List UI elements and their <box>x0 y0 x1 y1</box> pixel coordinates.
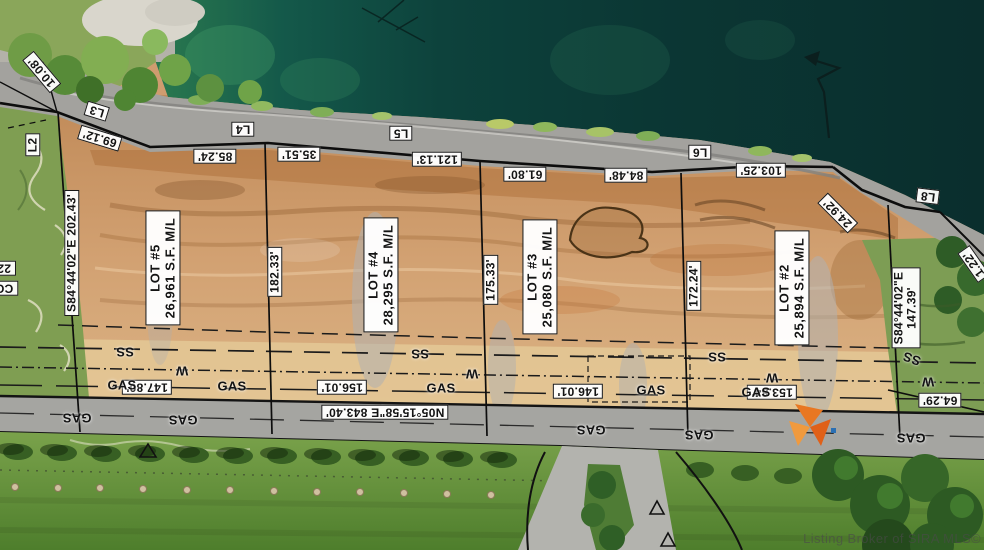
bearing-west: S84°44'02"E 202.43' <box>64 190 79 316</box>
water-line-text: W <box>766 370 779 385</box>
dim-175-33: 175.33' <box>483 255 498 305</box>
ss-line-text: SS <box>411 346 429 361</box>
dim-146-01: 146.01' <box>553 383 603 398</box>
dim-35-51: 35.51' <box>278 146 321 161</box>
gas-line-text: GAS <box>426 382 455 397</box>
dim-182-33: 182.33' <box>267 247 282 297</box>
lot-5-label: LOT #5 26,961 S.F. M/L <box>145 211 180 326</box>
mls-watermark: Listing Broker of SIRA MLS© <box>803 531 981 546</box>
lot-3-label: LOT #3 25,080 S.F. M/L <box>522 220 557 335</box>
curve-label-l4: L4 <box>232 121 255 136</box>
water-line-text: W <box>922 374 935 389</box>
edge-label-22: 22 <box>0 260 16 275</box>
contour-depression-outline <box>570 208 648 258</box>
dim-61-80: 61.80' <box>504 166 547 181</box>
lot-4-label: LOT #4 28,295 S.F. M/L <box>363 218 398 333</box>
curve-label-l8: L8 <box>916 187 940 205</box>
gas-road-text: GAS <box>576 422 605 437</box>
gas-line-text: GAS <box>636 384 665 399</box>
lot-2-label: LOT #2 25,894 S.F. M/L <box>774 231 809 346</box>
dim-64-29: 64.29' <box>919 392 962 407</box>
gas-road-text: GAS <box>684 427 713 442</box>
edge-label-co: CO <box>0 280 18 295</box>
gas-road-text: GAS <box>168 412 197 427</box>
water-line-text: W <box>176 363 189 378</box>
dim-121-13: 121.13' <box>412 151 462 166</box>
curve-label-l5: L5 <box>390 125 413 140</box>
dim-103-25: 103.25' <box>736 162 786 177</box>
ss-line-text: SS <box>116 344 134 359</box>
gas-road-text: GAS <box>62 410 91 425</box>
dim-172-24: 172.24' <box>686 261 701 311</box>
dim-84-48: 84.48' <box>605 167 648 182</box>
curve-label-l6: L6 <box>689 144 712 159</box>
curve-label-l2: L2 <box>25 134 40 157</box>
water-line-text: W <box>466 366 479 381</box>
gas-road-text: GAS <box>896 430 925 445</box>
plat-map-aerial: L210.08'L369.12'L485.24'35.51'L5121.13'6… <box>0 0 984 550</box>
gas-line-text: GAS <box>217 380 246 395</box>
dim-156-01: 156.01' <box>317 379 367 394</box>
gas-line-text: GAS <box>107 379 136 394</box>
bearing-road: N05°15'58"E 843.40' <box>322 404 449 419</box>
ss-line-text: SS <box>708 349 726 364</box>
bearing-east: S84°44'02"E 147.39' <box>892 268 921 349</box>
gas-line-text: GAS <box>741 386 770 401</box>
dim-85-24: 85.24' <box>194 148 237 163</box>
